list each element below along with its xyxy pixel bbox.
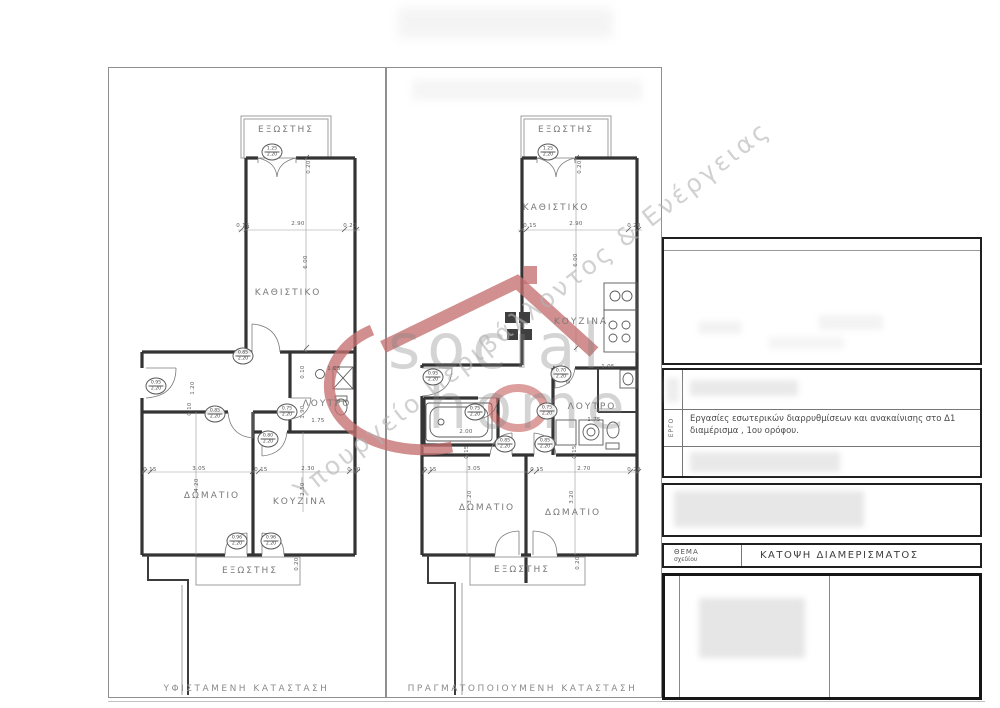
room-label: ΕΞΩΣΤΗΣ [222, 566, 278, 576]
room-label: ΕΞΩΣΤΗΣ [494, 565, 550, 575]
dimension-label: 2.90 [569, 221, 582, 227]
room-label: ΛΟΥΤΡΟ [303, 399, 352, 409]
door-size-callout: 0.852.20 [205, 406, 226, 423]
room-label: ΕΞΩΣΤΗΣ [538, 125, 594, 135]
dimension-label: 2.00 [459, 429, 472, 435]
dimension-label: 0.15 [530, 467, 543, 473]
dimension-label: 0.20 [627, 223, 640, 229]
dimension-label: 0.15 [236, 223, 249, 229]
dimension-label: 3.20 [467, 490, 473, 503]
dimension-label: 1.90 [300, 405, 306, 418]
dimension-label: 1.75 [311, 418, 324, 424]
dimension-label: 0.15 [464, 445, 470, 458]
door-size-callout: 0.852.20 [495, 436, 516, 453]
subject-value: ΚΑΤΟΨΗ ΔΙΑΜΕΡΙΣΜΑΤΟΣ [742, 545, 919, 566]
door-size-callout: 0.752.20 [465, 404, 486, 421]
redacted-plan-header [412, 80, 642, 100]
dimension-label: 0.20 [343, 223, 356, 229]
dimension-label: 6.00 [573, 253, 579, 266]
dimension-label: 0.15 [423, 467, 436, 473]
door-size-callout: 0.962.20 [227, 533, 248, 550]
subject-label-cell: ΘΕΜΑ σχεδίου [664, 545, 742, 566]
subject-label: ΘΕΜΑ [674, 548, 741, 556]
project-label: ΕΡΓΟ [669, 418, 676, 437]
dimension-label: 2.70 [577, 466, 590, 472]
room-label: ΔΩΜΑΤΙΟ [545, 508, 601, 518]
dimension-label: 0.20 [347, 467, 360, 473]
door-size-callout: 0.852.20 [535, 436, 556, 453]
dimension-label: 1.05 [327, 366, 340, 372]
door-size-callout: 1.252.20 [262, 144, 283, 161]
dimension-label: 0.20 [306, 160, 312, 173]
dimension-label: 2.90 [291, 221, 304, 227]
title-block-stamp-box [662, 573, 982, 700]
room-label: ΔΩΜΑΤΙΟ [459, 503, 515, 513]
dimension-label: 0.15 [254, 467, 267, 473]
dimension-label: 1.75 [587, 417, 600, 423]
dimension-label: 0.20 [577, 160, 583, 173]
room-label: ΚΟΥΖΙΝΑ [273, 497, 327, 507]
door-size-callout: 0.852.20 [233, 348, 254, 365]
door-size-callout: 0.752.20 [277, 404, 298, 421]
room-label: ΚΑΘΙΣΤΙΚΟ [255, 288, 322, 298]
room-label: ΛΟΥΤΡΟ [568, 402, 617, 412]
dimension-label: 0.20 [294, 557, 300, 570]
project-label-cell: ΕΡΓΟ [664, 409, 682, 446]
redacted-stamp [699, 598, 805, 658]
drawing-sheet: { "watermark": { "brand_line1": "social"… [0, 0, 1000, 708]
project-description: Εργασίες εσωτερικών διαρρυθμίσεων και αν… [690, 413, 976, 438]
dimension-label: 6.00 [303, 255, 309, 268]
redacted-top-text [398, 8, 613, 38]
left-plan-caption: ΥΦΙΣΤΑΜΕΝΗ ΚΑΤΑΣΤΑΣΗ [108, 684, 385, 694]
room-label: ΚΑΘΙΣΤΙΚΟ [523, 203, 590, 213]
door-size-callout: 0.962.20 [261, 533, 282, 550]
door-size-callout: 1.252.20 [538, 144, 559, 161]
room-label: ΔΩΜΑΤΙΟ [184, 491, 240, 501]
dimension-label: 3.05 [467, 466, 480, 472]
room-label: ΕΞΩΣΤΗΣ [258, 125, 314, 135]
dimension-label: 2.50 [300, 482, 306, 495]
dimension-label: 0.15 [523, 223, 536, 229]
title-block-project-box: ΕΡΓΟ Εργασίες εσωτερικών διαρρυθμίσεων κ… [662, 368, 982, 478]
dimension-label: 1.20 [190, 381, 196, 394]
door-size-callout: 0.952.20 [146, 378, 167, 395]
dimension-label: 0.20 [575, 556, 581, 569]
dimension-label: 1.05 [601, 364, 614, 370]
dimension-label: 0.10 [300, 365, 306, 378]
door-size-callout: 0.952.20 [423, 369, 444, 386]
title-block-top-box [662, 237, 982, 365]
door-size-callout: 0.802.20 [258, 431, 279, 448]
room-label: ΚΟΥΖΙΝΑ [554, 317, 608, 327]
door-size-callout: 0.752.20 [537, 403, 558, 420]
right-plan-caption: ΠΡΑΓΜΑΤΟΠΟΙΟΥΜΕΝΗ ΚΑΤΑΣΤΑΣΗ [385, 684, 660, 694]
dimension-label: 3.05 [192, 466, 205, 472]
dimension-label: 2.30 [301, 466, 314, 472]
subject-sublabel: σχεδίου [674, 556, 741, 563]
door-size-callout: 0.702.20 [551, 366, 572, 383]
dimension-label: 0.20 [627, 467, 640, 473]
title-block-owner-box [662, 483, 982, 537]
dimension-label: 0.10 [187, 402, 193, 415]
dimension-label: 4.20 [194, 478, 200, 491]
dimension-label: 0.15 [572, 445, 578, 458]
dimension-label: 3.20 [569, 490, 575, 503]
dimension-label: 0.15 [143, 467, 156, 473]
title-block-subject-box: ΘΕΜΑ σχεδίου ΚΑΤΟΨΗ ΔΙΑΜΕΡΙΣΜΑΤΟΣ [662, 543, 982, 568]
